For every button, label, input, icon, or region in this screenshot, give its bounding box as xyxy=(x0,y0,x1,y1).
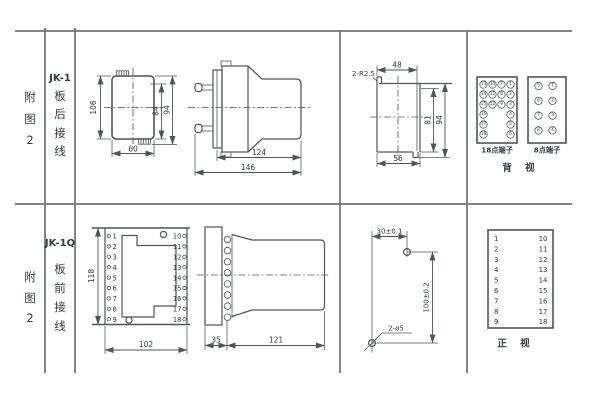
dim-total-length: 146 xyxy=(241,163,256,172)
terminal-dot xyxy=(107,318,110,321)
model-name: JK-1Q xyxy=(44,238,75,249)
terminal-number: 6 xyxy=(113,285,117,293)
terminal-number: 5 xyxy=(537,83,540,89)
terminal-number: 15 xyxy=(539,287,548,295)
terminal-number: 1 xyxy=(509,81,512,87)
terminal-number: 9 xyxy=(500,101,503,107)
terminal-dot xyxy=(224,281,231,288)
mounting-hole xyxy=(126,317,132,323)
terminal-number: 2 xyxy=(551,97,554,103)
terminal-8pt-label: 8点端子 xyxy=(534,146,561,155)
technical-drawing-sheet: 附 图 2 JK-1 板 后 接 线 附 图 2 JK-1Q 板 前 接 线 xyxy=(0,0,600,400)
terminal-dot xyxy=(183,234,186,237)
wiring-char: 前 xyxy=(54,281,66,295)
terminal-number: 8 xyxy=(113,306,117,314)
terminal-number: 5 xyxy=(509,121,512,127)
sidebar-row1-model-label: JK-1 板 后 接 线 xyxy=(48,73,71,158)
terminal-number: 8 xyxy=(537,127,540,133)
wiring-char: 线 xyxy=(54,144,66,158)
dim-bottom-width: 56 xyxy=(393,154,403,163)
terminal-number: 8 xyxy=(494,308,498,316)
terminal-dot xyxy=(107,234,110,237)
terminal-dot xyxy=(224,258,231,265)
rear-view-label: 背 视 xyxy=(502,162,539,174)
terminal-number: 6 xyxy=(494,287,499,295)
terminal-number: 16 xyxy=(481,111,487,117)
panel-cutout-view: 2-R2.5 48 81 94 56 xyxy=(352,61,452,168)
terminal-dot xyxy=(107,307,110,310)
terminal-number: 14 xyxy=(539,277,548,285)
terminal-diagram-8pt: 5678 1234 8点端子 xyxy=(528,77,566,155)
dim-width: 102 xyxy=(139,340,154,349)
terminal-number: 10 xyxy=(173,233,182,241)
wiring-char: 板 xyxy=(54,89,66,103)
sidebar-row1-figure-label: 附 图 2 xyxy=(24,90,36,147)
terminal-number: 4 xyxy=(509,111,512,117)
terminal-number: 3 xyxy=(551,112,554,118)
terminal-number: 14 xyxy=(173,274,182,282)
dim-hole-spacing-v: 100±0.2 xyxy=(423,282,431,312)
terminal-number: 18 xyxy=(173,316,182,324)
dim-outer-height: 94 xyxy=(163,105,172,115)
terminal-number: 6 xyxy=(509,131,512,137)
terminal-dot xyxy=(183,297,186,300)
terminal-dot xyxy=(107,266,110,269)
jk1q-front-view: 123456789 101112131415161718 118 102 xyxy=(87,228,190,354)
terminal-number: 7 xyxy=(494,297,498,305)
wiring-char: 接 xyxy=(54,300,66,314)
terminal-number: 12 xyxy=(490,101,496,107)
terminal-number: 11 xyxy=(173,243,182,251)
terminal-table-front: 123456789 101112131415161718 正 视 xyxy=(488,230,553,350)
terminal-number: 2 xyxy=(113,243,117,251)
terminal-dot xyxy=(183,318,186,321)
terminal-screw xyxy=(195,125,213,133)
terminal-number: 11 xyxy=(490,91,496,97)
front-view-label: 正 视 xyxy=(497,338,534,350)
dim-height: 118 xyxy=(87,269,96,284)
terminal-number: 10 xyxy=(490,81,496,87)
fig-char: 2 xyxy=(26,133,33,147)
terminal-dot xyxy=(107,297,110,300)
terminal-number: 13 xyxy=(481,81,487,87)
dim-height: 106 xyxy=(89,100,98,115)
holes-callout: 2-ø5 xyxy=(388,325,404,333)
terminal-number: 16 xyxy=(539,297,548,305)
drilling-plan: 30±0.1 100±0.2 2-ø5 xyxy=(365,228,439,353)
terminal-number: 15 xyxy=(481,101,487,107)
terminal-number: 13 xyxy=(539,266,548,274)
terminal-diagram-18pt: 131415161718 101112 789 123456 18点端子 xyxy=(477,77,517,155)
terminal-number: 7 xyxy=(500,81,503,87)
terminal-number: 3 xyxy=(509,101,512,107)
terminal-number: 6 xyxy=(537,97,540,103)
jk1q-side-view: 35 121 xyxy=(197,227,330,350)
terminal-dot xyxy=(183,286,186,289)
terminal-number: 3 xyxy=(113,254,117,262)
dim-hole-spacing-h: 30±0.1 xyxy=(377,228,403,236)
fig-char: 2 xyxy=(26,311,33,325)
terminal-dot xyxy=(107,255,110,258)
wiring-char: 线 xyxy=(54,319,66,333)
terminal-number: 11 xyxy=(539,245,548,253)
terminal-dot xyxy=(224,292,231,299)
terminal-number: 14 xyxy=(481,91,487,97)
terminal-number: 17 xyxy=(481,121,487,127)
terminal-dot xyxy=(107,276,110,279)
dim-inner-height: 84 xyxy=(152,106,161,116)
fig-char: 图 xyxy=(24,291,36,305)
terminal-screw xyxy=(195,84,213,92)
terminal-number: 7 xyxy=(537,112,540,118)
terminal-number: 12 xyxy=(539,256,548,264)
terminal-dot xyxy=(183,255,186,258)
dim-flange: 35 xyxy=(211,336,221,345)
terminal-number: 12 xyxy=(173,254,182,262)
terminal-number: 4 xyxy=(494,266,499,274)
model-name: JK-1 xyxy=(48,73,71,84)
terminal-number: 7 xyxy=(113,295,117,303)
cover-plate-outline xyxy=(122,236,176,318)
terminal-dot xyxy=(183,276,186,279)
wiring-char: 接 xyxy=(54,126,66,140)
terminal-dot xyxy=(224,303,231,310)
terminal-number: 17 xyxy=(539,308,548,316)
terminal-number: 18 xyxy=(481,131,487,137)
fig-char: 附 xyxy=(24,90,36,104)
terminal-number: 1 xyxy=(113,233,117,241)
dim-inner-height: 81 xyxy=(424,115,433,125)
terminal-dot xyxy=(183,266,186,269)
terminal-dot xyxy=(107,245,110,248)
terminal-number: 10 xyxy=(539,235,548,243)
terminal-number: 13 xyxy=(173,264,182,272)
terminal-number: 1 xyxy=(494,235,498,243)
sidebar-row2-model-label: JK-1Q 板 前 接 线 xyxy=(44,238,75,333)
terminal-number: 9 xyxy=(494,318,498,326)
terminal-18pt-label: 18点端子 xyxy=(481,146,513,155)
terminal-number: 3 xyxy=(494,256,498,264)
wiring-char: 板 xyxy=(54,262,66,276)
jk1-rear-outline-view: 106 84 94 60 xyxy=(89,68,177,157)
terminal-number: 16 xyxy=(173,295,182,303)
radius-callout: 2-R2.5 xyxy=(352,70,375,78)
terminal-number: 4 xyxy=(113,264,117,272)
mounting-hole xyxy=(160,231,166,237)
dim-outer-height: 94 xyxy=(435,115,444,125)
fig-char: 附 xyxy=(24,270,36,284)
terminal-number: 8 xyxy=(500,91,503,97)
terminal-dot xyxy=(224,236,231,243)
terminal-number: 1 xyxy=(551,83,554,89)
wiring-char: 后 xyxy=(54,107,66,121)
terminal-dot xyxy=(107,286,110,289)
terminal-number: 17 xyxy=(173,306,182,314)
terminal-number: 9 xyxy=(113,316,117,324)
drawing-canvas: 附 图 2 JK-1 板 后 接 线 附 图 2 JK-1Q 板 前 接 线 xyxy=(0,0,600,400)
sidebar-row2-figure-label: 附 图 2 xyxy=(24,270,36,325)
dim-width: 60 xyxy=(128,145,138,154)
terminal-number: 5 xyxy=(113,274,117,282)
terminal-dot xyxy=(224,314,231,321)
terminal-number: 15 xyxy=(173,285,182,293)
terminal-dot xyxy=(183,245,186,248)
terminal-number: 4 xyxy=(551,127,554,133)
terminal-number: 2 xyxy=(494,245,498,253)
terminal-number: 2 xyxy=(509,91,512,97)
terminal-number: 18 xyxy=(539,318,548,326)
dim-body-length: 124 xyxy=(252,148,267,157)
terminal-dot xyxy=(183,307,186,310)
fig-char: 图 xyxy=(24,112,36,126)
dim-top-width: 48 xyxy=(392,61,402,70)
dim-body: 121 xyxy=(269,336,284,345)
terminal-number: 5 xyxy=(494,277,498,285)
jk1-side-view: 124 146 xyxy=(188,61,312,176)
terminal-dot xyxy=(224,247,231,254)
